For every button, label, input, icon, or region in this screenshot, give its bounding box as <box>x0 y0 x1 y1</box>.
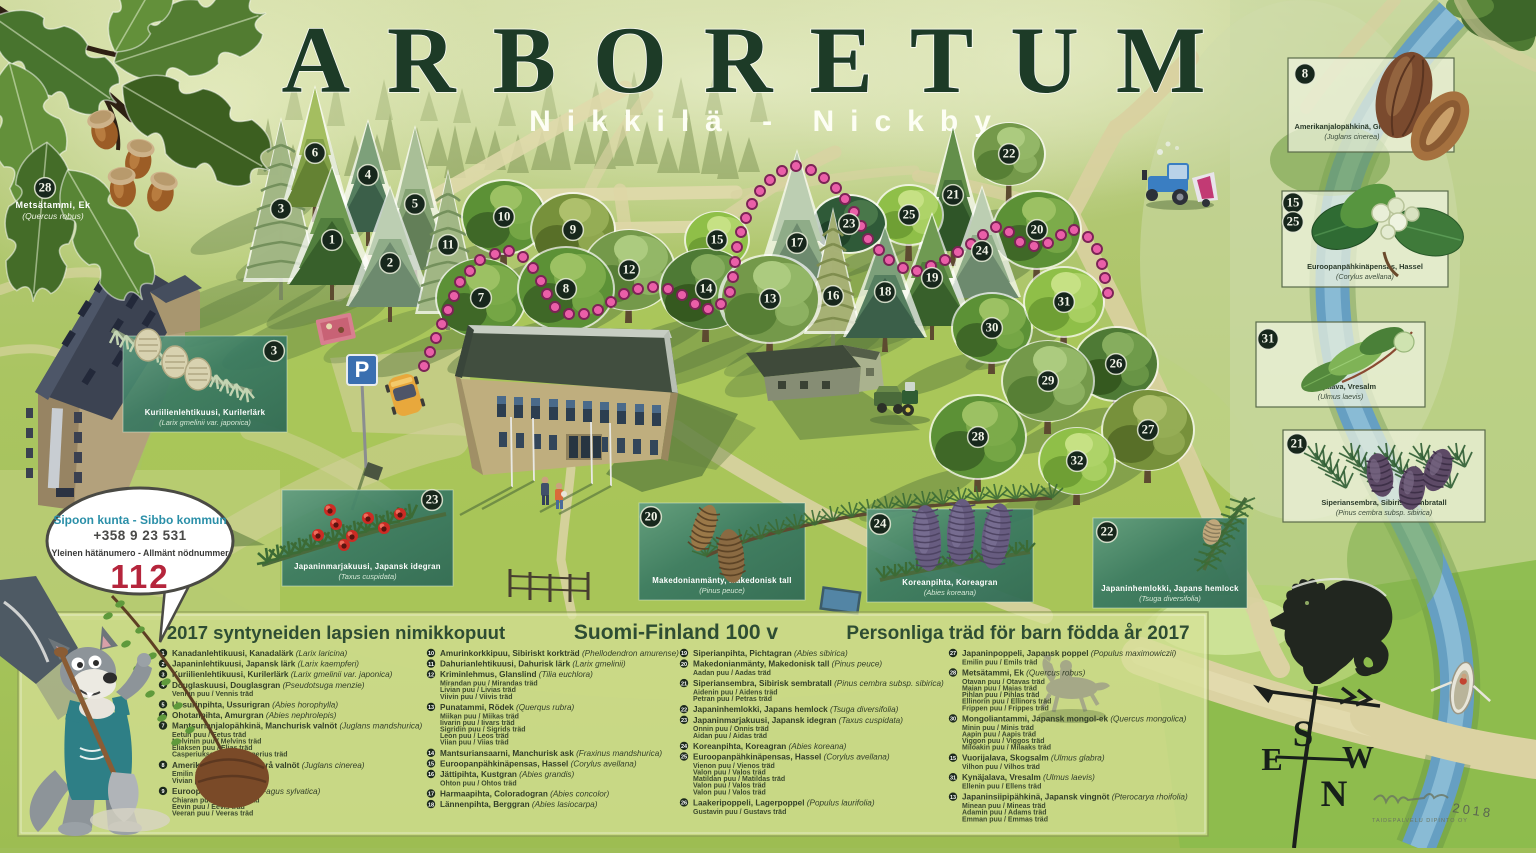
svg-text:Mantsuriansaarni, Manchurisk a: Mantsuriansaarni, Manchurisk ask (Fraxin… <box>440 749 662 758</box>
svg-text:8: 8 <box>563 281 569 295</box>
svg-text:18: 18 <box>428 802 434 808</box>
svg-text:16: 16 <box>428 772 434 778</box>
svg-text:9: 9 <box>570 222 576 236</box>
svg-text:22: 22 <box>681 707 687 713</box>
svg-text:(Quercus robus): (Quercus robus) <box>22 211 84 221</box>
svg-text:19: 19 <box>681 651 687 657</box>
svg-text:14: 14 <box>700 281 713 295</box>
svg-text:E: E <box>1261 741 1282 777</box>
svg-text:32: 32 <box>1071 453 1084 467</box>
svg-text:Amurinkorkkipuu, Sibiriskt kor: Amurinkorkkipuu, Sibiriskt korkträd (Phe… <box>440 649 679 658</box>
svg-text:TAIDEPALVELU DIPINTO OY: TAIDEPALVELU DIPINTO OY <box>1372 818 1468 824</box>
svg-text:31: 31 <box>950 775 956 781</box>
svg-text:Ohotanpihta, Amurgran (Abies n: Ohotanpihta, Amurgran (Abies nephrolepis… <box>172 711 337 720</box>
svg-text:Punatammi, Rödek (Querqus rubr: Punatammi, Rödek (Querqus rubra) <box>440 703 575 712</box>
svg-text:Viivin puu / Viivis träd: Viivin puu / Viivis träd <box>440 694 513 701</box>
svg-text:Japaninlehtikuusi, Japansk lär: Japaninlehtikuusi, Japansk lärk (Larix k… <box>172 660 359 669</box>
svg-text:Kuriilienlehtikuusi, Kurilerlä: Kuriilienlehtikuusi, Kurilerlärk <box>145 408 266 417</box>
svg-text:23: 23 <box>681 718 687 724</box>
svg-text:2017 syntyneiden lapsien nimik: 2017 syntyneiden lapsien nimikkopuut <box>167 622 505 643</box>
svg-text:Yleinen hätänumero - Allmänt n: Yleinen hätänumero - Allmänt nödnummer <box>51 548 229 558</box>
svg-text:11: 11 <box>442 237 454 251</box>
svg-text:6: 6 <box>312 145 319 159</box>
svg-text:20: 20 <box>645 509 658 523</box>
svg-text:Kanadanlehtikuusi, Kanadalärk: Kanadanlehtikuusi, Kanadalärk (Larix lar… <box>172 649 347 658</box>
svg-text:16: 16 <box>827 288 840 302</box>
svg-text:(Tsuga diversifolia): (Tsuga diversifolia) <box>1139 594 1201 603</box>
svg-text:17: 17 <box>791 235 804 249</box>
svg-text:112: 112 <box>110 558 169 595</box>
svg-text:25: 25 <box>903 207 916 221</box>
svg-text:Siperiansembra, Sibirisk sembr: Siperiansembra, Sibirisk sembratall <box>1321 498 1446 507</box>
svg-text:21: 21 <box>1291 436 1304 450</box>
svg-text:Japaninhemlokki, Japans hemloc: Japaninhemlokki, Japans hemlock <box>1101 584 1239 593</box>
svg-text:31: 31 <box>1058 294 1071 308</box>
svg-text:24: 24 <box>874 516 887 530</box>
svg-text:23: 23 <box>426 492 439 506</box>
svg-text:Emman puu / Emmas träd: Emman puu / Emmas träd <box>962 816 1048 823</box>
svg-text:7: 7 <box>161 724 164 730</box>
svg-text:18: 18 <box>879 284 892 298</box>
svg-text:Viian puu / Viias träd: Viian puu / Viias träd <box>440 740 509 747</box>
svg-text:27: 27 <box>950 651 956 657</box>
svg-text:23: 23 <box>843 216 856 230</box>
svg-text:21: 21 <box>681 681 687 687</box>
svg-text:13: 13 <box>428 705 434 711</box>
svg-text:10: 10 <box>498 209 511 223</box>
svg-text:S: S <box>1293 714 1314 755</box>
svg-text:(Larix gmelinii var. japonica): (Larix gmelinii var. japonica) <box>159 418 251 427</box>
svg-text:(Corylus avellana): (Corylus avellana) <box>1336 272 1394 281</box>
svg-text:2: 2 <box>161 662 164 668</box>
svg-text:Aadan puu / Aadas träd: Aadan puu / Aadas träd <box>693 670 771 677</box>
svg-text:Metsätammi, Ek: Metsätammi, Ek <box>15 200 91 210</box>
svg-text:(Taxus cuspidata): (Taxus cuspidata) <box>338 572 397 581</box>
svg-text:13: 13 <box>764 291 777 305</box>
svg-text:Koreanpihta, Koreagran (Abies: Koreanpihta, Koreagran (Abies koreana) <box>693 742 847 751</box>
svg-text:Vennin puu / Vennis träd: Vennin puu / Vennis träd <box>172 691 253 698</box>
svg-text:5: 5 <box>161 703 164 709</box>
svg-text:Valon puu / Valos träd: Valon puu / Valos träd <box>693 789 766 796</box>
svg-text:13: 13 <box>950 795 956 801</box>
svg-text:22: 22 <box>1003 146 1016 160</box>
svg-text:14: 14 <box>428 751 435 757</box>
svg-text:7: 7 <box>478 290 485 304</box>
svg-text:24: 24 <box>976 243 989 257</box>
svg-text:Makedonianmänty, Makedonisk ta: Makedonianmänty, Makedonisk tall (Pinus … <box>693 660 882 669</box>
svg-text:30: 30 <box>986 320 999 334</box>
svg-text:24: 24 <box>681 744 688 750</box>
svg-text:Emilin puu / Emils träd: Emilin puu / Emils träd <box>962 659 1037 666</box>
svg-text:W: W <box>1342 739 1374 775</box>
svg-text:Laakeripoppeli, Lagerpoppel (P: Laakeripoppeli, Lagerpoppel (Populus lau… <box>693 798 875 807</box>
svg-text:(Juglans cinerea): (Juglans cinerea) <box>1324 132 1379 141</box>
svg-text:30: 30 <box>950 717 956 723</box>
svg-text:Suomi-Finland 100 v: Suomi-Finland 100 v <box>574 621 779 644</box>
svg-text:15: 15 <box>428 762 434 768</box>
svg-text:Kriminlehmus, Glanslind (Tilia: Kriminlehmus, Glanslind (Tilia euchlora) <box>440 670 593 679</box>
svg-text:Ohton puu / Ohtos träd: Ohton puu / Ohtos träd <box>440 780 517 787</box>
svg-text:2: 2 <box>387 255 393 269</box>
svg-text:Aidan puu / Aidas träd: Aidan puu / Aidas träd <box>693 733 767 740</box>
svg-text:8: 8 <box>1302 66 1308 80</box>
svg-text:28: 28 <box>950 671 956 677</box>
svg-text:10: 10 <box>428 651 434 657</box>
svg-text:Euroopanpähkinäpensas, Hassel: Euroopanpähkinäpensas, Hassel (Corylus a… <box>693 753 890 762</box>
svg-text:Japaninhemlokki, Japans hemloc: Japaninhemlokki, Japans hemlock (Tsuga d… <box>693 705 899 714</box>
svg-text:1: 1 <box>329 232 335 246</box>
svg-text:N: N <box>1321 774 1348 815</box>
svg-text:17: 17 <box>428 792 434 798</box>
svg-text:3: 3 <box>278 201 284 215</box>
svg-text:3: 3 <box>271 343 277 357</box>
svg-text:Kuriilienlehtikuusi, Kurilerlä: Kuriilienlehtikuusi, Kurilerlärk (Larix … <box>172 670 393 679</box>
svg-text:15: 15 <box>1287 195 1300 209</box>
svg-text:4: 4 <box>365 167 372 181</box>
svg-text:Gustavin puu / Gustavs träd: Gustavin puu / Gustavs träd <box>693 809 786 816</box>
svg-text:26: 26 <box>1110 356 1123 370</box>
svg-text:Personliga träd för barn födda: Personliga träd för barn födda år 2017 <box>846 623 1189 644</box>
svg-text:11: 11 <box>428 662 434 668</box>
svg-text:12: 12 <box>428 672 434 678</box>
svg-text:Japaninmarjakuusi, Japansk ide: Japaninmarjakuusi, Japansk idegran (Taxu… <box>693 716 903 725</box>
svg-text:Dahurianlehtikuusi, Dahurisk l: Dahurianlehtikuusi, Dahurisk lärk (Larix… <box>440 660 626 669</box>
svg-text:3: 3 <box>161 672 164 678</box>
svg-text:Japaninpoppeli, Japansk poppel: Japaninpoppeli, Japansk poppel (Populus … <box>962 649 1177 658</box>
svg-text:12: 12 <box>623 262 636 276</box>
svg-text:(Pinus cembra subsp. sibirica): (Pinus cembra subsp. sibirica) <box>1336 508 1432 517</box>
svg-text:(Abies koreana): (Abies koreana) <box>924 588 977 597</box>
svg-text:15: 15 <box>711 232 724 246</box>
svg-text:Metsätammi, Ek (Quercus robus): Metsätammi, Ek (Quercus robus) <box>962 669 1086 678</box>
svg-text:9: 9 <box>161 789 164 795</box>
svg-text:Euroopanpähkinäpensas, Hassel: Euroopanpähkinäpensas, Hassel <box>1307 262 1423 271</box>
svg-text:(Ulmus laevis): (Ulmus laevis) <box>1318 392 1364 401</box>
svg-text:25: 25 <box>1287 214 1300 228</box>
svg-text:Jättipihta, Kustgran (Abies gr: Jättipihta, Kustgran (Abies grandis) <box>440 770 574 779</box>
svg-text:ARBORETUM: ARBORETUM <box>281 7 1242 113</box>
svg-text:Vuorijalava, Skogsalm (Ulmus g: Vuorijalava, Skogsalm (Ulmus glabra) <box>962 754 1105 763</box>
svg-text:27: 27 <box>1142 422 1155 436</box>
svg-text:15: 15 <box>950 756 956 762</box>
svg-text:Japaninmarjakuusi, Japansk ide: Japaninmarjakuusi, Japansk idegran <box>294 562 441 571</box>
svg-text:19: 19 <box>926 270 939 284</box>
svg-text:31: 31 <box>1262 331 1275 345</box>
svg-text:Lännenpihta, Berggran (Abies l: Lännenpihta, Berggran (Abies lasiocarpa) <box>440 800 598 809</box>
svg-text:22: 22 <box>1101 524 1114 538</box>
svg-text:Douglaskuusi, Douglasgran (Pse: Douglaskuusi, Douglasgran (Pseudotsuga m… <box>172 681 365 690</box>
svg-text:Siperianpihta, Pichtagran (Abi: Siperianpihta, Pichtagran (Abies sibiric… <box>693 649 848 658</box>
svg-text:25: 25 <box>681 755 687 761</box>
svg-text:Vilhon puu / Vilhos träd: Vilhon puu / Vilhos träd <box>962 764 1040 771</box>
svg-text:28: 28 <box>39 180 52 194</box>
svg-text:20: 20 <box>1031 222 1044 236</box>
svg-text:5: 5 <box>412 196 418 210</box>
svg-text:20: 20 <box>681 662 687 668</box>
svg-text:Koreanpihta, Koreagran: Koreanpihta, Koreagran <box>902 578 997 587</box>
svg-text:P: P <box>355 357 370 382</box>
svg-text:Kynäjalava, Vresalm (Ulmus lae: Kynäjalava, Vresalm (Ulmus laevis) <box>962 773 1095 782</box>
svg-text:Petran puu / Petras träd: Petran puu / Petras träd <box>693 696 772 703</box>
svg-text:Japaninsiipipähkinä, Japansk v: Japaninsiipipähkinä, Japansk vingnöt (Pt… <box>962 793 1188 802</box>
svg-text:28: 28 <box>972 429 985 443</box>
svg-text:Sipoon kunta - Sibbo kommun: Sipoon kunta - Sibbo kommun <box>53 513 226 527</box>
svg-text:21: 21 <box>947 187 960 201</box>
svg-text:Euroopanpähkinäpensas, Hassel: Euroopanpähkinäpensas, Hassel (Corylus a… <box>440 759 637 768</box>
svg-text:+358 9 23 531: +358 9 23 531 <box>93 528 186 543</box>
svg-text:Frippen puu / Frippes träd: Frippen puu / Frippes träd <box>962 705 1049 712</box>
svg-text:Miloakin puu / Milaaks träd: Miloakin puu / Milaaks träd <box>962 745 1051 752</box>
svg-text:26: 26 <box>681 801 687 807</box>
svg-text:Nikkilä - Nickby: Nikkilä - Nickby <box>529 105 1007 138</box>
svg-text:Makedonianmänty, Makedonisk ta: Makedonianmänty, Makedonisk tall <box>652 576 791 585</box>
svg-text:29: 29 <box>1042 373 1055 387</box>
svg-text:Siperiansembra, Sibirisk sembr: Siperiansembra, Sibirisk sembratall (Pin… <box>693 679 944 688</box>
svg-text:Veeran puu / Veeras träd: Veeran puu / Veeras träd <box>172 811 253 818</box>
svg-text:Mongoliantammi, Japansk mongol: Mongoliantammi, Japansk mongol-ek (Querc… <box>962 714 1187 723</box>
svg-text:Harmaapihta, Coloradogran (Abi: Harmaapihta, Coloradogran (Abies concolo… <box>440 790 610 799</box>
svg-text:8: 8 <box>161 763 164 769</box>
svg-text:Ellenin puu / Ellens träd: Ellenin puu / Ellens träd <box>962 784 1041 791</box>
svg-text:(Pinus peuce): (Pinus peuce) <box>699 586 745 595</box>
